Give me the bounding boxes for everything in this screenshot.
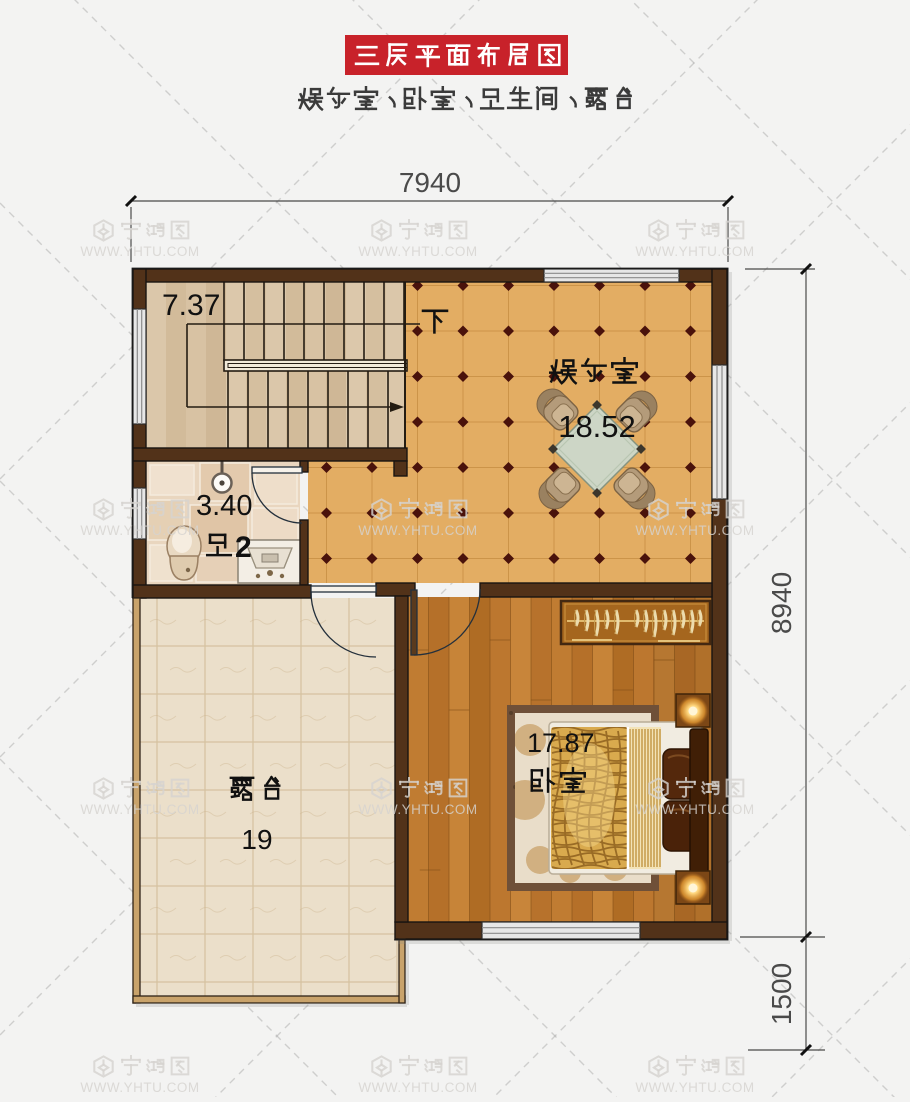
svg-text:WWW.YHTU.COM: WWW.YHTU.COM — [635, 1080, 754, 1095]
svg-text:WWW.YHTU.COM: WWW.YHTU.COM — [80, 523, 199, 538]
svg-text:WWW.YHTU.COM: WWW.YHTU.COM — [358, 523, 477, 538]
svg-text:WWW.YHTU.COM: WWW.YHTU.COM — [358, 802, 477, 817]
svg-text:WWW.YHTU.COM: WWW.YHTU.COM — [358, 244, 477, 259]
svg-text:WWW.YHTU.COM: WWW.YHTU.COM — [635, 523, 754, 538]
svg-text:19: 19 — [241, 824, 272, 855]
svg-text:WWW.YHTU.COM: WWW.YHTU.COM — [80, 802, 199, 817]
svg-text:WWW.YHTU.COM: WWW.YHTU.COM — [80, 244, 199, 259]
svg-text:2: 2 — [235, 531, 252, 564]
svg-text:7.37: 7.37 — [162, 289, 220, 322]
svg-text:8940: 8940 — [766, 572, 797, 634]
svg-text:18.52: 18.52 — [558, 409, 636, 444]
svg-text:3.40: 3.40 — [196, 490, 252, 522]
svg-text:WWW.YHTU.COM: WWW.YHTU.COM — [635, 802, 754, 817]
svg-text:WWW.YHTU.COM: WWW.YHTU.COM — [358, 1080, 477, 1095]
svg-text:WWW.YHTU.COM: WWW.YHTU.COM — [80, 1080, 199, 1095]
svg-text:17.87: 17.87 — [527, 728, 595, 758]
svg-text:1500: 1500 — [766, 963, 797, 1025]
svg-text:7940: 7940 — [399, 167, 461, 198]
svg-text:WWW.YHTU.COM: WWW.YHTU.COM — [635, 244, 754, 259]
